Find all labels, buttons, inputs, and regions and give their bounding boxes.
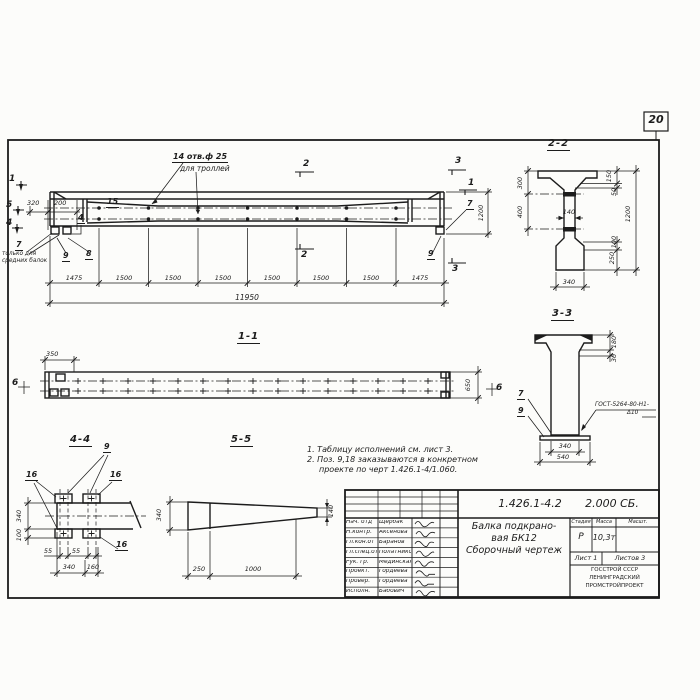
dim-140-web: 140: [556, 209, 582, 216]
dim-seg-1: 1475: [61, 275, 87, 282]
stamp-role-7: Провер.: [346, 579, 377, 585]
stamp-title-line3: Сборочный чертеж: [460, 546, 568, 556]
dim-total-11950: 11950: [232, 294, 262, 302]
section-2-2-dims: [524, 165, 640, 291]
dim-55-a: 55: [41, 548, 55, 555]
dim-seg-3: 1500: [160, 275, 186, 282]
section-5-5-title: 5-5: [230, 435, 253, 447]
cut-marker-3-top: 3: [455, 157, 461, 166]
stamp-name-5: Мединская: [379, 560, 411, 566]
stamp-name-2: Аксенова: [379, 530, 411, 536]
pos-4: 4: [77, 214, 85, 224]
dim-50: 50: [611, 177, 621, 207]
dim-340-s22: 340: [556, 279, 582, 286]
sheet-number: 20: [645, 114, 667, 125]
section-3-3-outline: [535, 335, 592, 440]
weld-note-line1: ГОСТ-5264-80-Н1-: [595, 403, 649, 409]
stamp-header-scale: Масшт.: [618, 520, 658, 525]
dim-340-s33: 340: [552, 443, 578, 450]
weld-note-line2: Δ10: [627, 411, 638, 417]
stamp-name-4: Полатников: [379, 550, 411, 556]
stamp-org-line1: ГОССТРОЙ СССР: [572, 568, 657, 574]
section-1-1-bolts: [75, 378, 431, 394]
cut-marker-5: 5: [6, 201, 12, 210]
dim-300: 300: [517, 168, 527, 198]
stamp-name-8: Бабович: [379, 589, 411, 595]
section-1-1-title: 1-1: [237, 332, 260, 344]
dim-1200-elevation: 1200: [478, 193, 488, 233]
section-3-3-plates: [535, 335, 592, 431]
dim-seg-8: 1475: [407, 275, 433, 282]
stamp-org-line2: ЛЕНИНГРАДСКИЙ: [572, 576, 657, 582]
dim-340-s55: 340: [156, 500, 166, 530]
cut-marker-1: 1: [9, 175, 15, 184]
pos-7-right: 7: [466, 200, 474, 210]
elevation-holes: [97, 206, 398, 221]
pos-9-left: 9: [62, 252, 70, 262]
stamp-role-2: Н.контр.: [346, 530, 377, 536]
dim-340-bottom-s44: 340: [56, 564, 82, 571]
dim-250: 250: [609, 243, 619, 273]
section-1-1-centerlines: [40, 381, 455, 391]
stamp-name-6: Гордеева: [379, 569, 411, 575]
section-1-1-dims: [18, 356, 498, 404]
stamp-role-3: Гл.кон.от: [346, 540, 377, 546]
pos-15: 15: [106, 198, 119, 208]
dim-200: 200: [54, 200, 66, 207]
section-5-5-ticks: [167, 499, 299, 579]
note-line-3: проекте по черт 1.426.1-4/1.060.: [319, 466, 457, 474]
dim-1200-section: 1200: [625, 194, 635, 234]
signature-marks: [415, 522, 435, 596]
dim-55-b: 55: [69, 548, 83, 555]
dim-320: 320: [27, 200, 39, 207]
stamp-header-mass: Масса: [593, 520, 615, 525]
pos-9-right: 9: [427, 250, 435, 260]
stamp-role-1: Нач. отд: [346, 520, 377, 526]
dim-1000: 1000: [238, 566, 268, 573]
stamp-header-stage: Стадия: [570, 520, 592, 525]
stamp-role-4: Гл.спец.от: [346, 550, 377, 556]
dim-seg-5: 1500: [259, 275, 285, 282]
cut-marker-2-top: 2: [303, 160, 309, 169]
stamp-stage-value: Р: [570, 533, 592, 542]
section-2-2-title: 2-2: [547, 139, 570, 151]
section-5-5-outline: [188, 502, 317, 530]
pos-7-note-line1: только для: [2, 252, 36, 258]
stamp-name-3: Баранов: [379, 540, 411, 546]
stamp-role-6: Проект.: [346, 569, 377, 575]
stamp-sheet: Лист 1: [571, 555, 601, 562]
pos-9-s33: 9: [517, 407, 525, 417]
cut-marker-6-left: 6: [12, 379, 18, 388]
stamp-title-line1: Балка подкрано-: [460, 522, 568, 532]
pos-7-left: 7: [15, 241, 23, 251]
stamp-role-8: Исполн.: [346, 589, 377, 595]
pos-16-right: 16: [109, 471, 122, 481]
drawing-sheet: 20 1 5 4 2 2 3 3 1 320 200 1200 1475 150…: [0, 0, 700, 700]
cut-marker-6-right: 6: [496, 384, 502, 393]
dim-400: 400: [517, 197, 527, 227]
pos-16-bottom: 16: [115, 541, 128, 551]
section-1-1-outline: [45, 372, 450, 398]
stamp-sheets: Листов 3: [605, 555, 655, 562]
dim-650: 650: [465, 365, 475, 405]
holes-note-line2: для троллей: [180, 165, 230, 173]
dim-100-s44: 100: [16, 523, 26, 547]
note-line-1: 1. Таблицу исполнений см. лист 3.: [307, 446, 453, 454]
section-1-1-ticks: [42, 357, 481, 401]
cut-marker-2-bottom: 2: [301, 251, 307, 260]
stamp-mass-value: 10,3т: [592, 534, 616, 542]
dim-540: 540: [550, 454, 576, 461]
dim-250-s55: 250: [188, 566, 210, 573]
note-line-2: 2. Поз. 9,18 заказываются в конкретном: [307, 456, 478, 464]
dim-seg-4: 1500: [210, 275, 236, 282]
stamp-name-7: Гордеева: [379, 579, 411, 585]
doc-code: 2.000 СБ.: [572, 498, 652, 509]
pos-9-s44: 9: [103, 443, 111, 453]
stamp-title-line2: вая БК12: [460, 534, 568, 544]
cut-marker-4: 4: [6, 219, 12, 228]
dim-seg-7: 1500: [358, 275, 384, 282]
stamp-org-line3: ПРОМСТРОЙПРОЕКТ: [572, 584, 657, 590]
dim-350: 350: [46, 351, 58, 358]
section-4-4-title: 4-4: [69, 435, 92, 447]
cut-marker-3-bottom: 3: [452, 265, 458, 274]
dim-seg-6: 1500: [308, 275, 334, 282]
dim-140-s55: 140: [328, 497, 338, 525]
pos-16-left: 16: [25, 471, 38, 481]
holes-note-line1: 14 отв.ф 25: [172, 153, 228, 163]
sheet-frame: [8, 112, 668, 598]
section-2-2-outline: [538, 171, 597, 270]
section-2-2-arrowheads: [559, 216, 581, 220]
stamp-role-5: Рук. гр.: [346, 560, 377, 566]
pos-7-note-line2: средних балок: [2, 259, 47, 265]
section-3-3-title: 3-3: [551, 309, 574, 321]
pos-7-s33: 7: [517, 390, 525, 400]
dim-seg-2: 1500: [111, 275, 137, 282]
dim-30: 30: [611, 343, 621, 373]
drawing-linework: [0, 0, 700, 700]
pos-8: 8: [85, 250, 93, 260]
dim-160: 160: [80, 564, 106, 571]
cut-marker-1-right: 1: [468, 179, 474, 188]
section-4-4-leaders: [34, 455, 118, 549]
stamp-name-1: Щербак: [379, 520, 411, 526]
